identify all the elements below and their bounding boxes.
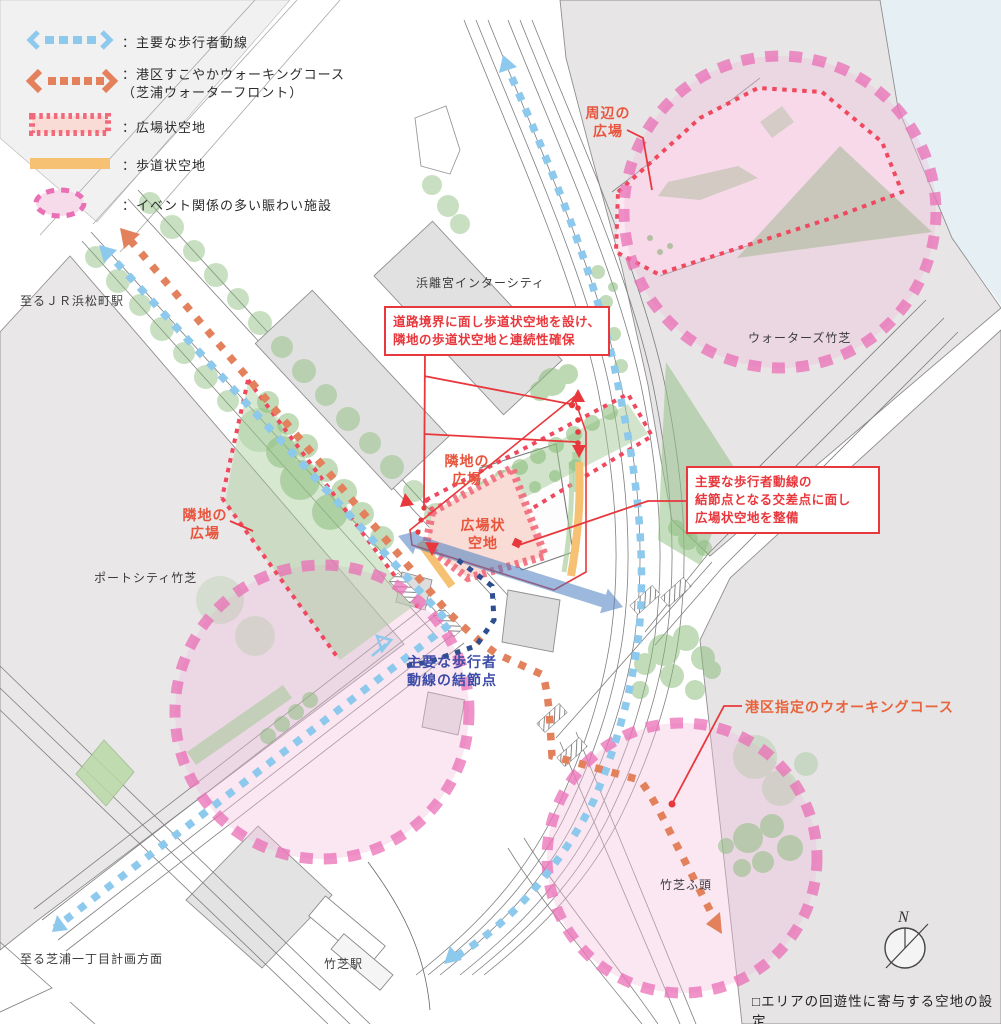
callout-plaza-at-node: 主要な歩行者動線の 結節点となる交差点に面し 広場状空地を整備: [686, 466, 880, 534]
label-surrounding-plaza: 周辺の 広場: [575, 104, 641, 140]
legend-label: ：港区すこやかウォーキングコース （芝浦ウォーターフロント）: [122, 66, 345, 101]
label-takeshiba-station: 竹芝駅: [324, 957, 363, 973]
legend-label: ：歩道状空地: [122, 157, 206, 175]
label-port-city-takeshiba: ポートシティ竹芝: [94, 571, 197, 587]
sidewalk-open-space-icon: [26, 154, 122, 177]
plaza-open-space-icon: [26, 110, 122, 145]
legend-item-plaza-open-space: ：広場状空地: [26, 110, 345, 145]
label-waters-takeshiba: ウォーターズ竹芝: [748, 331, 851, 347]
figure-caption: □エリアの回遊性に寄与する空地の設定: [752, 990, 1001, 1024]
callout-sidewalk-continuity: 道路境界に面し歩道状空地を設け、 隣地の歩道状空地と連続性確保: [384, 306, 610, 356]
event-facility-icon: [26, 186, 122, 225]
label-to-shibaura-itchome: 至る芝浦一丁目計画方面: [20, 952, 163, 968]
legend-item-event-facility: ：イベント関係の多い賑わい施設: [26, 186, 345, 225]
legend-label: ：イベント関係の多い賑わい施設: [122, 197, 332, 215]
label-takeshiba-pier: 竹芝ふ頭: [660, 878, 712, 894]
label-minato-walking-course: 港区指定のウオーキングコース: [745, 698, 954, 716]
takeshiba-open-space-map: N ：主要な歩行者動線 ：港区すこやかウォーキングコース （芝浦ウォーターフロン…: [0, 0, 1001, 1024]
label-pedestrian-node: 主要な歩行者 動線の結節点: [396, 653, 508, 689]
legend-item-walking-course: ：港区すこやかウォーキングコース （芝浦ウォーターフロント）: [26, 66, 345, 101]
legend-label: ：広場状空地: [122, 119, 206, 137]
label-adjacent-plaza-left: 隣地の 広場: [174, 506, 236, 542]
label-to-jr-hamamatsucho: 至るＪＲ浜松町駅: [20, 294, 124, 310]
legend-label: ：主要な歩行者動線: [122, 34, 248, 52]
legend-item-sidewalk-open-space: ：歩道状空地: [26, 154, 345, 177]
label-adjacent-plaza-center: 隣地の 広場: [434, 452, 500, 488]
blue-dashed-arrow-icon: [26, 28, 122, 57]
label-plaza-open-space: 広場状 空地: [450, 516, 516, 552]
legend-item-pedestrian-flow: ：主要な歩行者動線: [26, 28, 345, 57]
compass-n-label: N: [897, 909, 910, 926]
map-legend: ：主要な歩行者動線 ：港区すこやかウォーキングコース （芝浦ウォーターフロント）…: [26, 28, 345, 234]
orange-dotted-arrow-icon: [26, 68, 122, 99]
label-hamarikyu-intercity: 浜離宮インターシティ: [416, 276, 545, 292]
